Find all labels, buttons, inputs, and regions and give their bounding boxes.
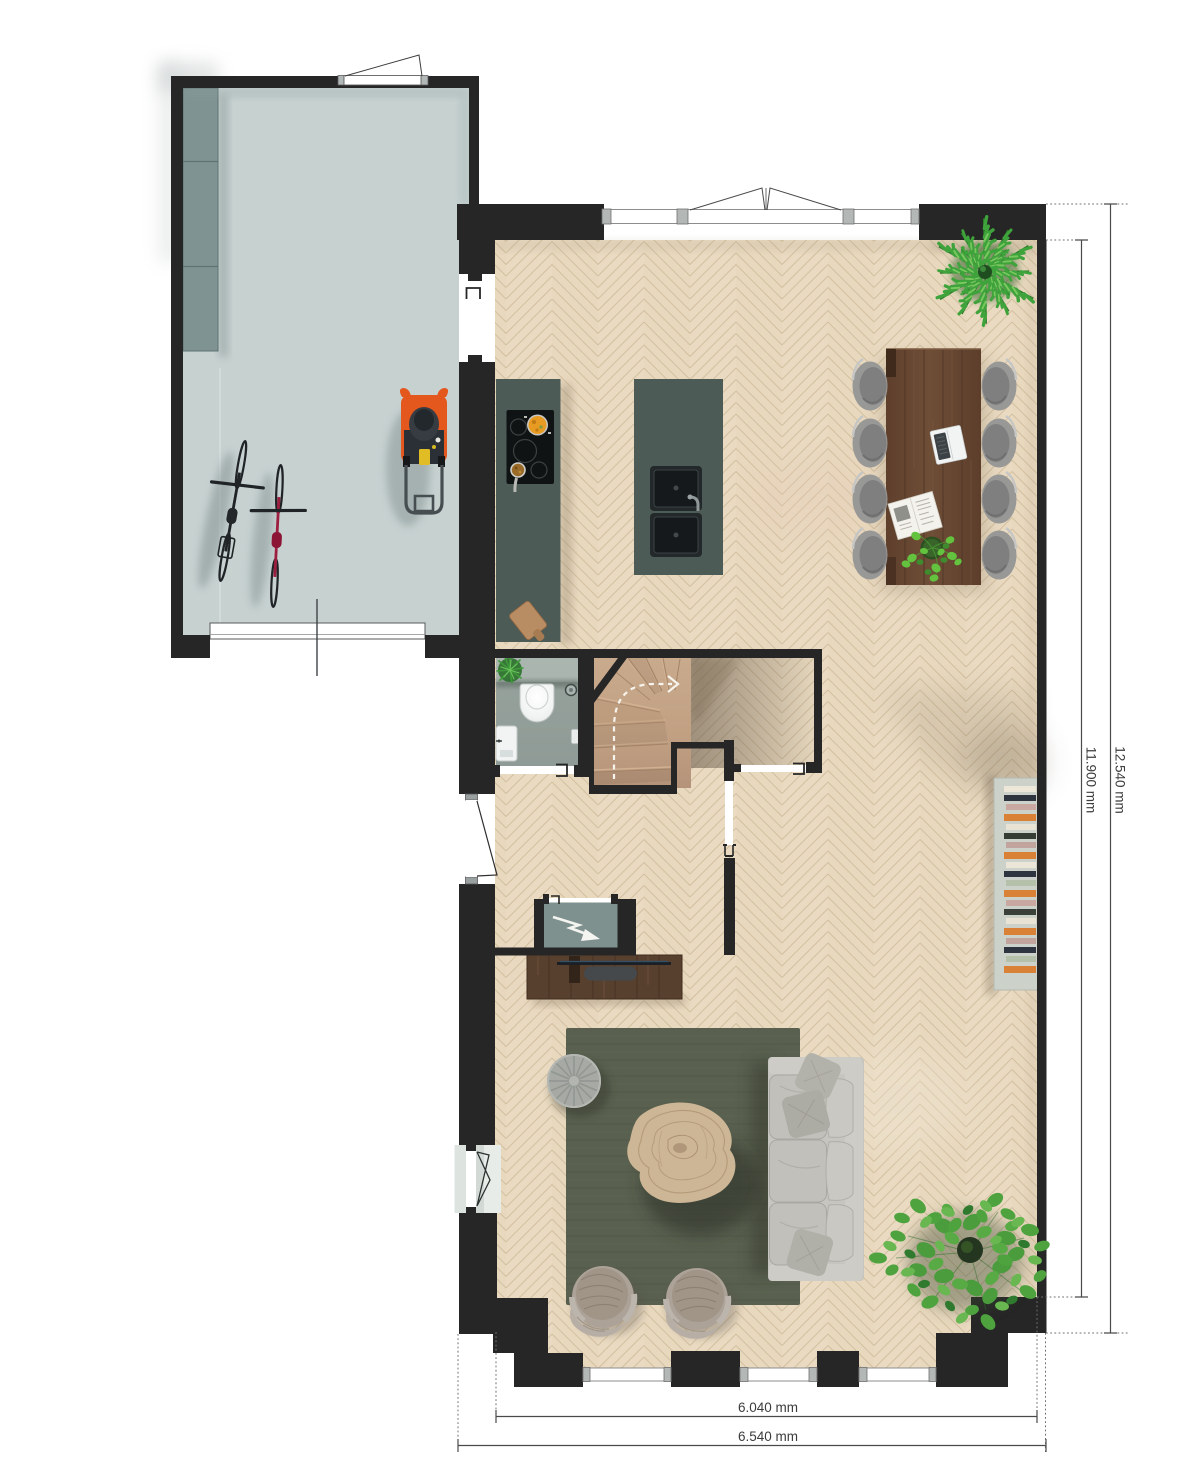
svg-text:11.900 mm: 11.900 mm: [1084, 747, 1099, 814]
svg-text:6.040 mm: 6.040 mm: [738, 1400, 798, 1415]
svg-text:6.540 mm: 6.540 mm: [738, 1429, 798, 1444]
svg-text:12.540 mm: 12.540 mm: [1113, 746, 1128, 814]
